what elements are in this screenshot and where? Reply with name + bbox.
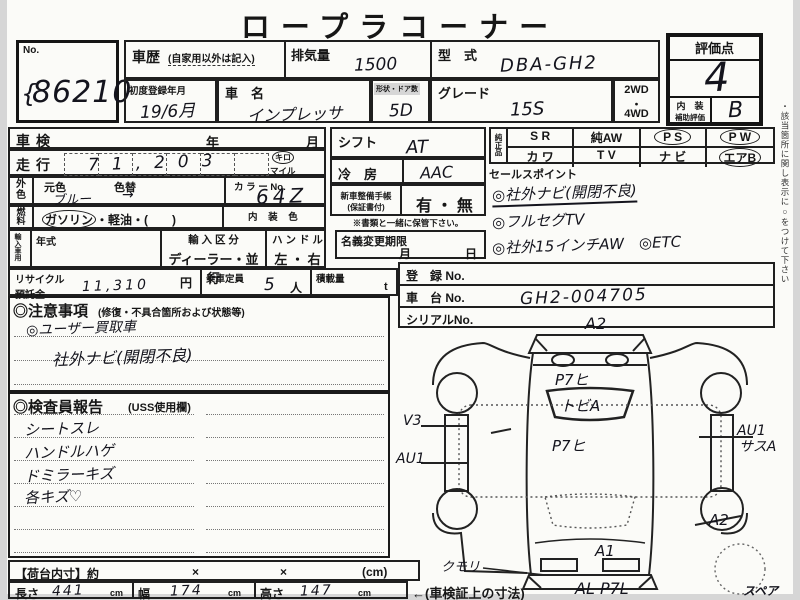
doors-box: 形状・ドア数 5D [371, 79, 430, 123]
inspector-line-2: ハンドルハゲ [24, 439, 115, 463]
transfer-month-label: 月 [399, 245, 411, 262]
mark-right3: A2 [708, 511, 729, 529]
lot-number-label: No. [23, 45, 39, 56]
recycle-row: リサイクル 預託金 11,310 円 乗車定員 5 人 積載量 t [8, 268, 398, 296]
doors-label: 形状・ドア数 [374, 83, 420, 95]
chassis-no-row: 車 台 No. GH2-004705 [400, 286, 773, 308]
exterior-color-char2: 色 [16, 191, 26, 202]
registration-no-label: 登 録 No. [406, 267, 465, 284]
car-name-label: 車 名 [225, 83, 264, 102]
mark-headlight: クモリ [441, 560, 480, 575]
right-front-wheel [701, 373, 741, 413]
handle-label: ハ ン ド ル [267, 232, 328, 247]
mileage-unit-km: キロ [272, 151, 294, 164]
length-value: 441 [52, 582, 85, 599]
equip-airbag: エアB [707, 148, 773, 167]
interior-grade-row: 内 装 補助評価 B [670, 96, 759, 122]
keep-documents-note: ※書類と一緒に保管下さい。 [330, 217, 486, 229]
registration-no-row: 登 録 No. [400, 264, 773, 286]
equip-char3: 品 [495, 149, 503, 157]
transfer-deadline-box: 名義変更期限 月 日 [335, 230, 486, 259]
notes-box: ◎注意事項 (修復・不具合箇所および状態等) ◎ユーザー買取車 社外ナビ(開閉不… [8, 296, 390, 392]
interior-label: 内 装 [670, 99, 710, 112]
shaken-label: 車検 [16, 131, 56, 151]
shift-box: シフト AT [330, 127, 486, 158]
chassis-no-label: 車 台 No. [406, 289, 465, 306]
cargo-dims-unit: (cm) [362, 565, 387, 579]
first-registration-label: 初度登録年月 [129, 83, 186, 97]
drivetrain-2wd: 2WD [615, 84, 658, 96]
equip-ps: P S [641, 129, 707, 148]
handle-cell: ハ ン ド ル 左 ・ 右 [265, 231, 328, 266]
cargo-dims-label: 【荷台内寸】約 [15, 565, 99, 582]
fuel-row: 燃 料 ガソリン・軽油・( ) [8, 205, 224, 229]
service-book-note: (保証書付) [332, 202, 400, 213]
length-cm: cm [110, 588, 123, 598]
equip-navi: ナ ビ [641, 148, 707, 167]
recycle-label-1: リサイクル [15, 271, 65, 286]
drivetrain-box: 2WD ・ 4WD [613, 79, 660, 123]
lot-number-value: 86210 [32, 75, 132, 110]
capacity-value: 5 [264, 275, 276, 295]
auction-sheet-scan: ロープラコーナー No. { 86210 車歴 (自家用以外は記入) 排気量 1… [0, 0, 800, 600]
service-book-label: 新車整備手帳 [332, 190, 400, 202]
equipment-vlabel: 純 正 品 [491, 129, 508, 162]
chassis-no-value: GH2-004705 [520, 285, 648, 309]
mark-roof: P7ヒ [552, 437, 586, 455]
year-type-cell: 年式 [30, 231, 160, 266]
mark-gate2: トビA [560, 397, 600, 415]
sales-point-2: ◎フルセグTV [492, 208, 585, 232]
displacement-label: 排気量 [291, 45, 330, 64]
evaluation-value: 4 [703, 55, 730, 102]
shift-label: シフト [338, 132, 377, 151]
inspector-line-4: 各キズ♡ [24, 485, 83, 508]
spare-label: スペア [743, 584, 780, 597]
handle-value: 左 ・ 右 [267, 249, 328, 268]
first-registration-box: 初度登録年月 19/6月 [124, 79, 217, 123]
equip-pw: P W [707, 129, 773, 148]
left-fold-outline [433, 343, 530, 385]
doors-value: 5D [389, 101, 414, 122]
mark-gate1: P7ヒ [555, 371, 589, 389]
grade-value: 15S [510, 98, 545, 120]
equip-sr: S R [508, 129, 574, 148]
equip-kawa: カ ワ [508, 148, 574, 167]
grade-label: グレード [438, 83, 490, 102]
import-vlabel: 輸入車用 [12, 233, 22, 268]
fuel-gasoline: ガソリン [42, 210, 96, 229]
cargo-dims-x2: × [280, 565, 287, 579]
inspector-line-1: シートスレ [24, 417, 100, 441]
model-code-box: 型 式 DBA-GH2 [430, 40, 660, 79]
transfer-deadline-label: 名義変更期限 [341, 233, 407, 249]
ac-value: AAC [420, 162, 454, 182]
car-name-box: 車 名 インプレッサ [217, 79, 371, 123]
car-body-right-edge [647, 353, 653, 575]
yen-label: 円 [180, 274, 192, 291]
year-type-label: 年式 [36, 233, 56, 248]
width-cm: cm [228, 588, 241, 598]
cargo-dims-header-row: 【荷台内寸】約 × × (cm) [8, 560, 420, 581]
mileage-row: 走行 71,203 キロ マイル [8, 149, 326, 176]
displacement-value: 1500 [354, 54, 398, 75]
vehicle-dims-row: 長さ 441 cm 幅 174 cm 高さ 147 cm [8, 581, 408, 599]
windshield-dotted [545, 494, 635, 528]
mark-right2: サスA [739, 439, 776, 455]
left-rear-wheel [437, 489, 477, 529]
notes-line-1: ◎ユーザー買取車 [26, 316, 137, 340]
height-value: 147 [300, 582, 333, 599]
first-registration-value: 19/6月 [140, 96, 196, 123]
exterior-color-row: 外 色 元色 色替 ブルー → カ ラ ー No. 64Z [8, 176, 326, 205]
mark-right1: AU1 [736, 423, 766, 439]
inspector-subtitle: (USS使用欄) [128, 399, 191, 415]
headlight-left [541, 559, 577, 571]
model-code-value: DBA-GH2 [500, 52, 599, 76]
cargo-dims-x1: × [192, 565, 199, 579]
model-code-label: 型 式 [438, 45, 477, 64]
interior-grade-value: B [728, 98, 744, 124]
shaken-row: 車検 年 月 [8, 127, 326, 149]
history-note: (自家用以外は記入) [168, 50, 255, 66]
fuel-rest: ・軽油・( ) [96, 213, 176, 227]
history-label: 車歴 [132, 47, 160, 67]
import-row: 輸入車用 年式 輸 入 区 分 ディーラー・並行 ハ ン ド ル 左 ・ 右 [8, 229, 326, 268]
mark-rear: A2 [584, 314, 606, 333]
color-change-value: → [122, 187, 134, 203]
fuel-char2: 料 [16, 217, 25, 226]
equipment-grid: 純 正 品 S R 純AW P S P W カ ワ T V ナ ビ エアB [489, 127, 775, 164]
side-vertical-note: ・該当箇所に関し表示に○をつけて下さい [779, 102, 791, 352]
width-label: 幅 [138, 585, 150, 600]
mark-bumper: AL P7L [574, 579, 629, 597]
mark-front: A1 [594, 542, 615, 560]
mark-left2: AU1 [395, 451, 425, 467]
car-body-left-edge [527, 353, 533, 575]
equip-aw: 純AW [574, 129, 640, 148]
exterior-color-vlabel: 外 色 [10, 178, 34, 203]
equip-tv: T V [574, 148, 640, 167]
headlight-right [603, 559, 639, 571]
mark-left1: V3 [403, 413, 421, 429]
car-damage-diagram: A2 P7ヒ トビA P7ヒ V3 AU1 A1 クモリ AL P7L AU1 … [395, 313, 790, 597]
evaluation-box: 評価点 4 内 装 補助評価 B [666, 33, 763, 126]
grade-box: グレード 15S [430, 79, 613, 123]
ac-box: 冷 房 AAC [330, 158, 486, 184]
fuel-vlabel: 燃 料 [10, 207, 34, 227]
capacity-label: 乗車定員 [206, 271, 244, 285]
lot-number-box: No. { 86210 [16, 40, 119, 123]
car-name-value: インプレッサ [247, 99, 343, 126]
shift-value: AT [406, 137, 429, 159]
width-value: 174 [170, 582, 203, 599]
import-class-label: 輸 入 区 分 [162, 232, 265, 247]
load-label: 積載量 [316, 271, 345, 285]
inspector-line-3: ドミラーキズ [24, 462, 115, 486]
service-book-value: 有 ・ 無 [416, 192, 473, 216]
capacity-unit: 人 [290, 279, 302, 296]
load-cell: 積載量 t [310, 270, 400, 294]
interior-color-cell: 内 装 色 [222, 205, 326, 229]
mileage-label: 走行 [16, 155, 56, 175]
notes-line-2: 社外ナビ(開閉不良) [52, 342, 193, 371]
transfer-day-label: 日 [465, 245, 477, 262]
capacity-cell: 乗車定員 5 人 [200, 270, 310, 294]
inspector-report-box: ◎検査員報告 (USS使用欄) シートスレ ハンドルハゲ ドミラーキズ 各キズ♡ [8, 392, 390, 558]
recycle-value: 11,310 [82, 277, 150, 295]
sales-points-label: セールスポイント [489, 166, 577, 182]
drivetrain-4wd: 4WD [615, 108, 658, 120]
displacement-box: 排気量 1500 [284, 40, 432, 79]
aux-eval-label: 補助評価 [670, 112, 710, 123]
history-box: 車歴 (自家用以外は記入) [124, 40, 286, 79]
exterior-color-char1: 外 [16, 180, 26, 191]
ac-label: 冷 房 [338, 164, 377, 183]
right-rocker-bar [711, 415, 733, 491]
interior-grade-labels: 内 装 補助評価 [670, 98, 712, 122]
height-cm: cm [358, 588, 371, 598]
color-no-cell: カ ラ ー No. 64Z [224, 178, 328, 203]
left-front-wheel [437, 373, 477, 413]
service-book-box: 新車整備手帳 (保証書付) 有 ・ 無 [330, 184, 486, 216]
load-unit: t [384, 281, 388, 293]
interior-color-label: 内 装 色 [248, 209, 302, 223]
length-label: 長さ [15, 585, 39, 600]
right-fold-outline [650, 343, 747, 385]
height-label: 高さ [260, 585, 284, 600]
import-class-cell: 輸 入 区 分 ディーラー・並行 [160, 231, 265, 266]
